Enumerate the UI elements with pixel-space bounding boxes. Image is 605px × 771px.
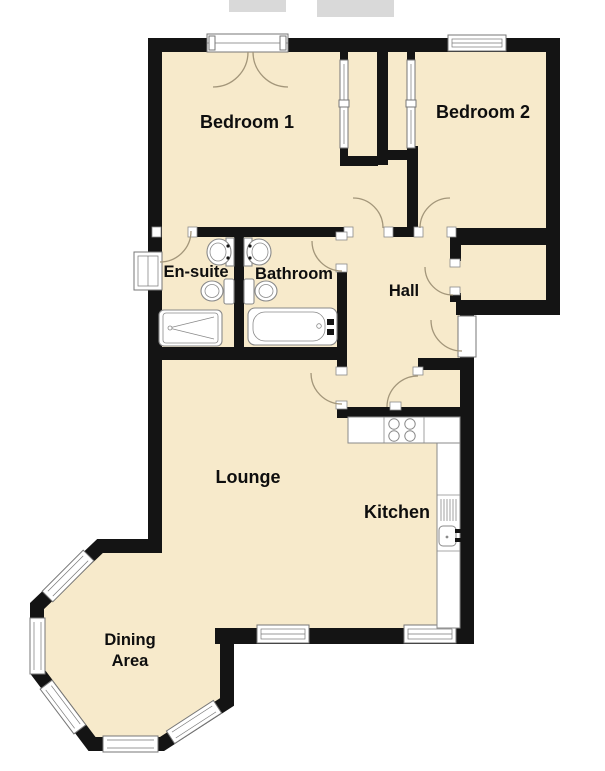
bay-window-south (103, 736, 158, 752)
floor-plan-page: Bedroom 1 Bedroom 2 En-suite Bathroom Ha… (0, 0, 605, 771)
wardrobe-door-bedroom-1 (339, 60, 349, 148)
bay-window-west (30, 618, 45, 674)
wall-wardrobe-divider (377, 52, 388, 165)
wall-right-mid-a (460, 300, 474, 317)
label-bathroom: Bathroom (255, 265, 333, 283)
floor-plan-canvas: Bedroom 1 Bedroom 2 En-suite Bathroom Ha… (0, 0, 605, 771)
wall-wardrobe2-bottom (388, 150, 408, 160)
wall-ensuite-bathroom-divider (234, 237, 244, 349)
label-hall: Hall (389, 282, 419, 300)
wall-between-bedroom-doors (391, 227, 416, 237)
wall-bedroom2-south (450, 228, 560, 245)
window-en-suite (134, 252, 162, 290)
bathtub (248, 308, 337, 345)
wardrobe-door-bedroom-2 (406, 60, 416, 148)
wall-entry-cupboard-north (418, 358, 474, 370)
label-bedroom-2: Bedroom 2 (436, 102, 530, 122)
floor-lounge-kitchen (155, 410, 467, 636)
label-bedroom-1: Bedroom 1 (200, 112, 294, 132)
shower-tray (159, 310, 222, 346)
window-lounge (257, 625, 309, 643)
wall-bathrooms-north (195, 227, 337, 237)
wall-wardrobe1-bottom (340, 156, 378, 166)
wall-kitchen-north (338, 407, 474, 418)
wall-bathrooms-south (148, 347, 347, 360)
floor-storage-cupboard (450, 240, 554, 306)
label-en-suite: En-suite (163, 263, 228, 281)
label-lounge: Lounge (216, 467, 281, 487)
wall-right-upper (546, 38, 560, 315)
wash-basin-bathroom (244, 238, 271, 266)
wall-right-lower (460, 356, 474, 630)
window-bedroom-2 (448, 35, 506, 51)
floor-bedrooms (155, 45, 554, 237)
french-window-bedroom-1 (207, 34, 288, 52)
label-dining-line1: Dining (104, 631, 155, 649)
wash-basin-ensuite (207, 238, 234, 266)
label-dining-line2: Area (112, 652, 150, 670)
wall-left (148, 38, 162, 550)
label-kitchen: Kitchen (364, 502, 430, 522)
wall-bedroom2-west (407, 146, 418, 228)
